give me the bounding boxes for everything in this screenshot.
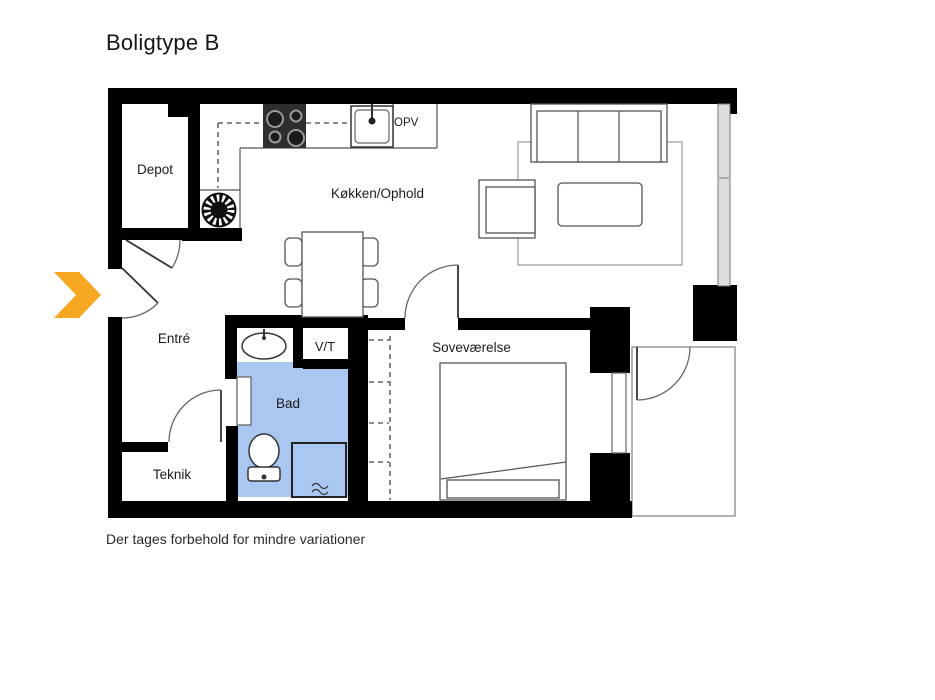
bedroom-window [612, 373, 626, 453]
entrance-arrow-icon [54, 272, 101, 318]
armchair [479, 180, 535, 238]
room-label-kitchen-living: Køkken/Ophold [305, 186, 450, 201]
label-washer-dryer: V/T [303, 339, 347, 354]
floor-plan: Boligtype B Depot Køkken/Ophold OPV Entr… [0, 0, 935, 700]
kitchen-sink-icon [351, 104, 393, 147]
room-label-bedroom: Soveværelse [409, 340, 534, 355]
wardrobe-dashed [369, 336, 390, 500]
room-label-bath: Bad [258, 396, 318, 411]
label-dishwasher: OPV [394, 117, 434, 129]
ventilation-icon [202, 193, 237, 228]
sofa [531, 104, 667, 162]
bath-door-leaf [237, 377, 251, 425]
page-title: Boligtype B [106, 30, 220, 56]
living-room-window [718, 104, 730, 286]
room-label-entry: Entré [144, 331, 204, 346]
disclaimer-text: Der tages forbehold for mindre variation… [106, 531, 365, 547]
dining-set [285, 232, 378, 317]
coffee-table [558, 183, 642, 226]
stove-icon [263, 104, 306, 148]
room-label-utility: Teknik [131, 467, 213, 482]
bed [440, 363, 566, 500]
washbasin-icon [242, 329, 286, 359]
room-label-depot: Depot [125, 162, 185, 177]
toilet-icon [248, 434, 280, 481]
